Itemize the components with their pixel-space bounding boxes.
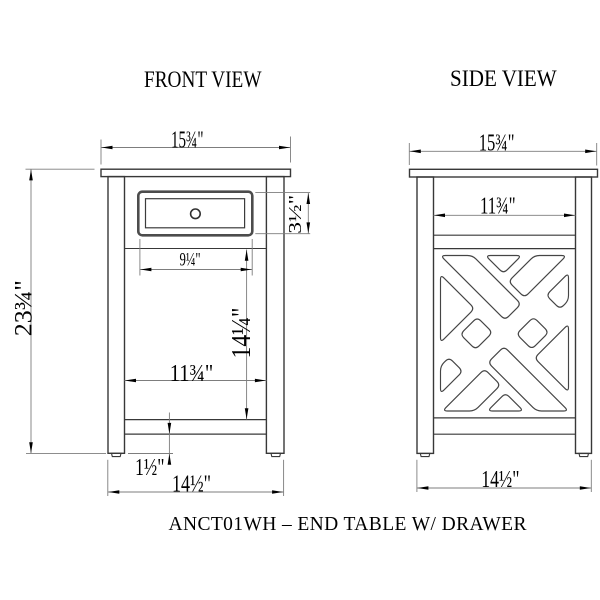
svg-text:11¾": 11¾" [170,361,214,387]
svg-text:ANCT01WH – END TABLE W/ DRAWER: ANCT01WH – END TABLE W/ DRAWER [169,514,527,535]
svg-text:9¼": 9¼" [180,250,201,270]
svg-text:23¾": 23¾" [11,280,38,336]
svg-text:14½": 14½" [172,472,211,498]
svg-text:14¼": 14¼" [225,308,256,359]
svg-text:15¾": 15¾" [479,131,515,157]
svg-text:15¾": 15¾" [171,127,204,153]
svg-text:14½": 14½" [481,467,519,493]
svg-text:FRONT VIEW: FRONT VIEW [144,67,262,92]
svg-text:SIDE VIEW: SIDE VIEW [450,66,557,91]
svg-text:3½": 3½" [285,195,305,234]
svg-text:1½": 1½" [135,455,165,481]
svg-text:11¾": 11¾" [480,194,516,220]
